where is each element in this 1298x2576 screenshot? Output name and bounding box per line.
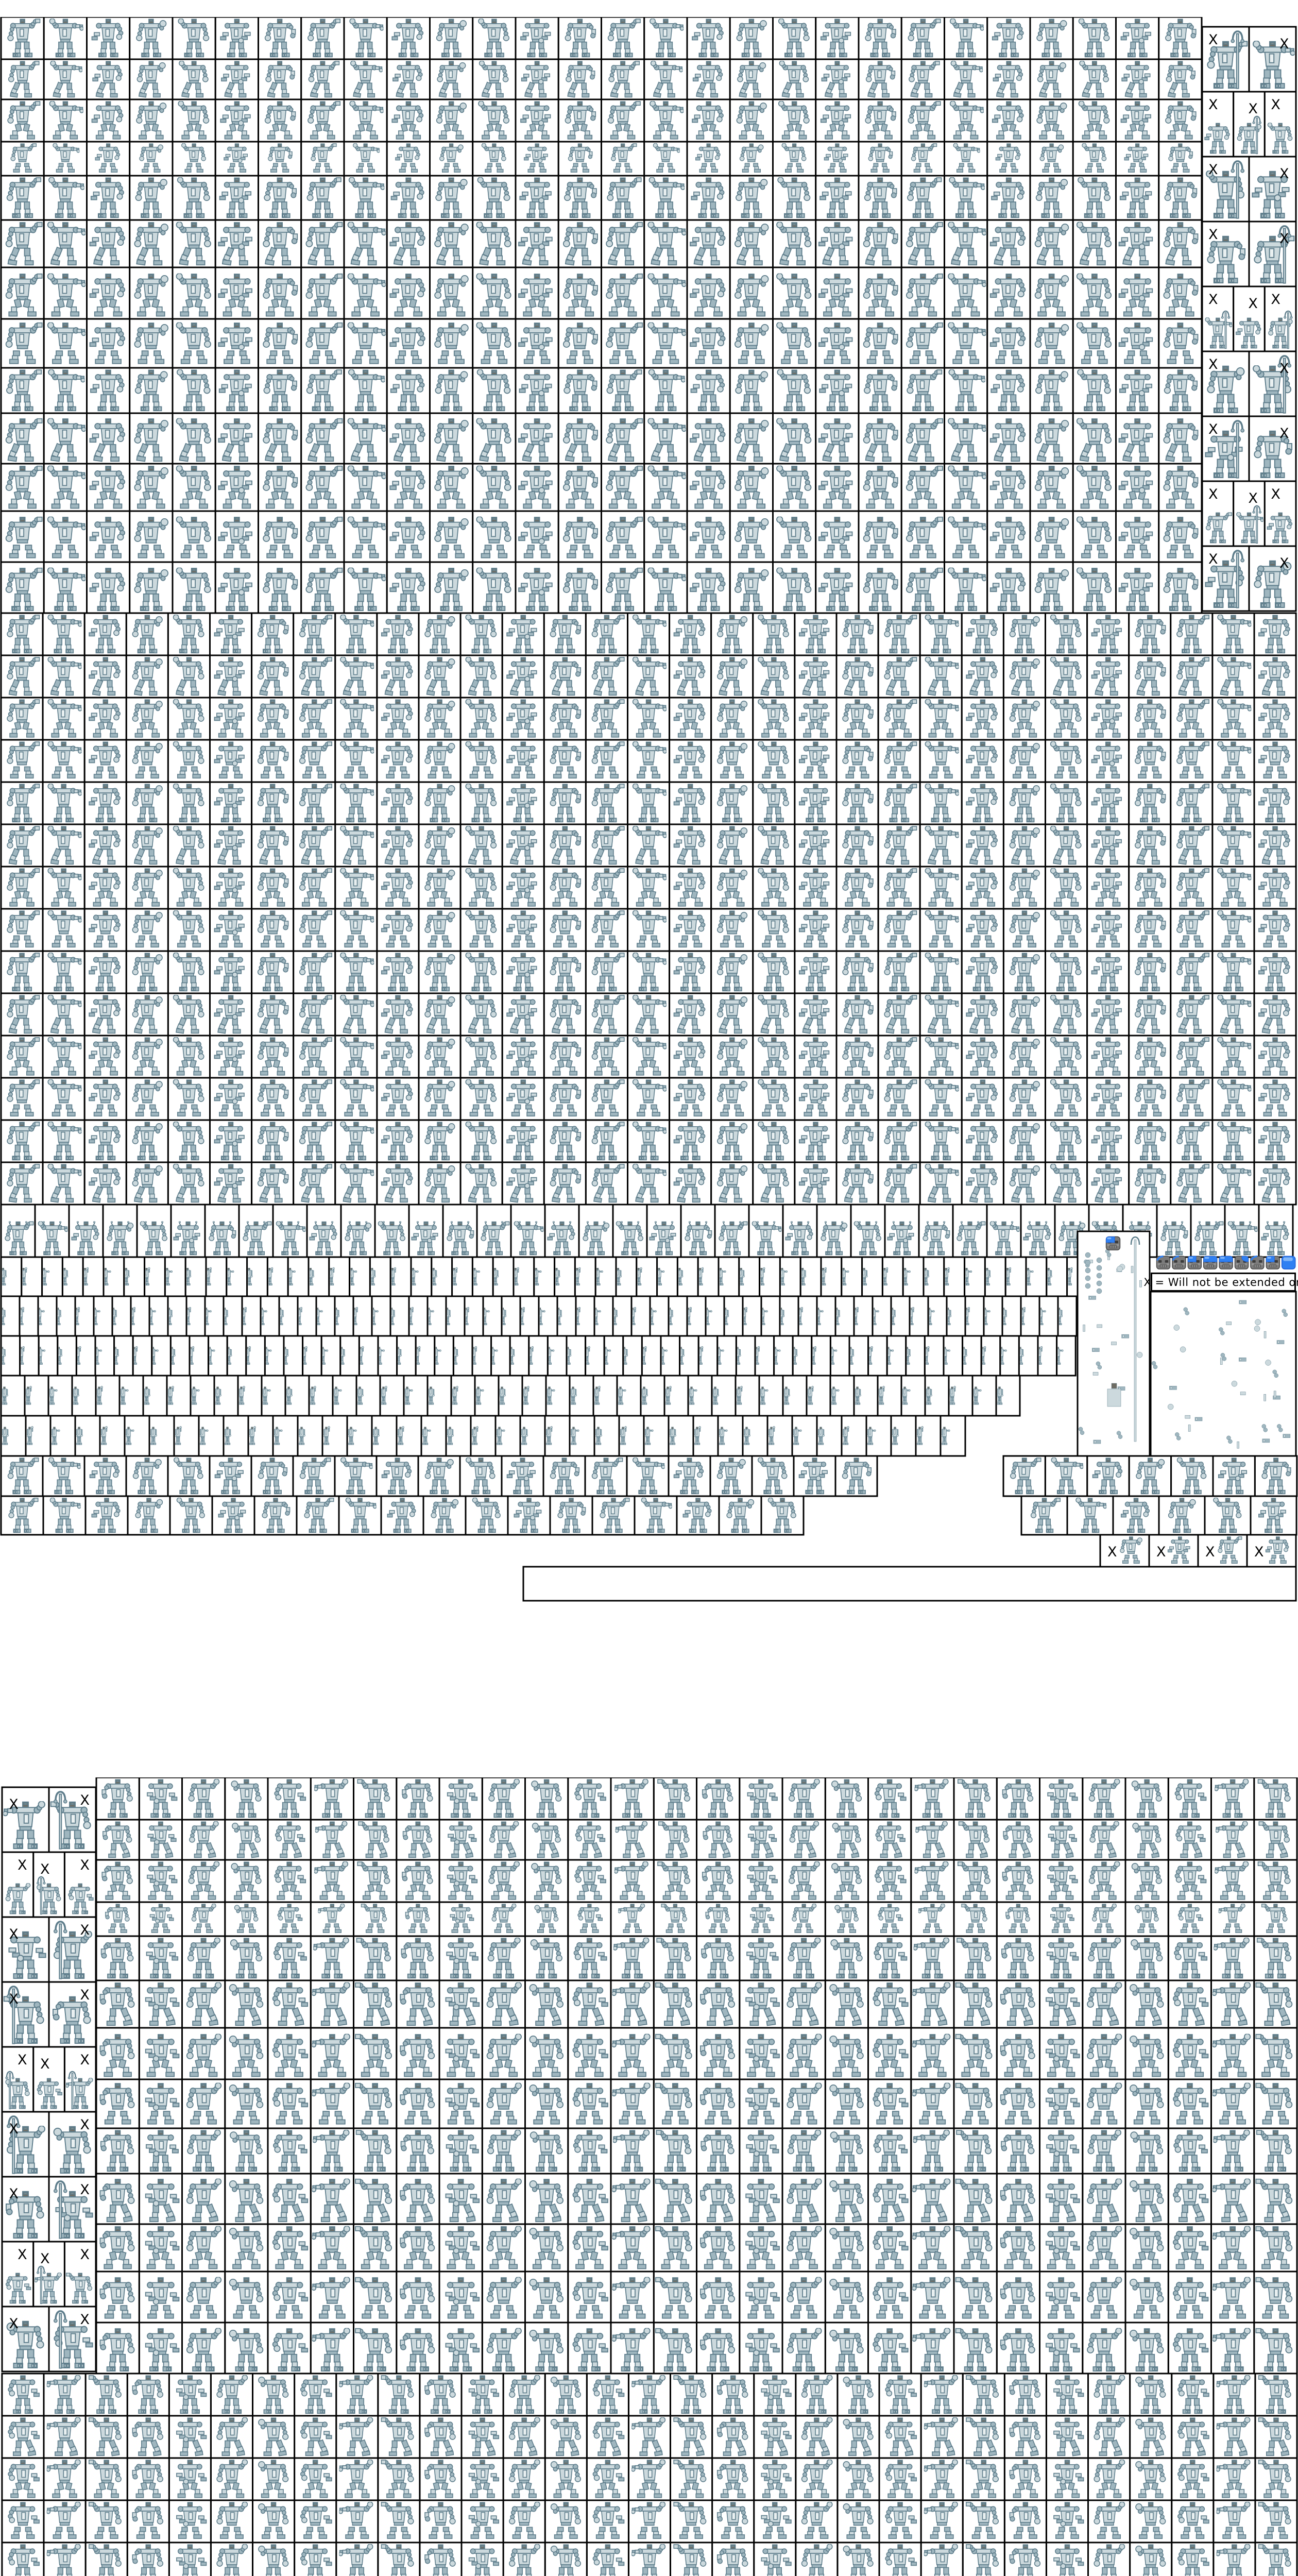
sprite-cell [1087, 1036, 1129, 1078]
sprite-cell [420, 2458, 462, 2500]
sprite-cell [1211, 2272, 1254, 2323]
sprite-cell [1255, 2416, 1297, 2458]
sprite-cell [558, 562, 601, 613]
sprite-cell [335, 1162, 377, 1205]
sprite-cell [1035, 1336, 1056, 1376]
sprite-cell [1171, 1036, 1212, 1078]
sprite-cell [225, 1820, 268, 1860]
sprite-cell [273, 1205, 307, 1257]
sprite-cell [1125, 1777, 1168, 1820]
sprite-cell [294, 1162, 335, 1205]
sprite-cell-x: X [1234, 481, 1265, 546]
sprite-cell [835, 1456, 877, 1496]
sprite-cell [173, 17, 215, 59]
sprite-cell [225, 2224, 268, 2272]
sprite-cell [168, 1120, 210, 1162]
sprite-cell [1254, 698, 1296, 740]
sprite-cell [795, 824, 836, 867]
sprite-cell [126, 824, 168, 867]
sprite-cell [697, 1777, 740, 1820]
sprite-cell [225, 2174, 268, 2224]
sprite-cell [0, 1257, 22, 1296]
sprite-cell [602, 176, 644, 220]
parts-box [1151, 1292, 1296, 1456]
sprite-cell [878, 951, 920, 993]
sprite-cell [795, 993, 836, 1036]
sprite-cell [654, 2323, 696, 2374]
sprite-cell [628, 2543, 670, 2576]
sprite-cell [127, 2543, 169, 2576]
sprite-cell [945, 267, 987, 319]
sprite-cell [859, 176, 901, 220]
sprite-cell [419, 698, 460, 740]
sprite-cell [96, 1376, 119, 1416]
sprite-cell [1212, 1078, 1254, 1120]
sprite-cell [1212, 782, 1254, 824]
sprite-cell [1171, 909, 1212, 951]
sprite-cell [253, 2458, 295, 2500]
sprite-cell [825, 2323, 868, 2374]
sprite-cell [1205, 1496, 1251, 1535]
sprite-cell [602, 562, 644, 613]
sprite-cell [344, 176, 387, 220]
sprite-cell [1159, 99, 1202, 142]
sprite-cell [87, 220, 130, 267]
sprite-cell [987, 142, 1030, 176]
sprite-cell [627, 1456, 669, 1496]
sprite-cell [1003, 1456, 1045, 1496]
sprite-cell [182, 2323, 225, 2374]
sprite-cell [836, 867, 878, 909]
sprite-cell [997, 2323, 1039, 2374]
sprite-cell [404, 1376, 428, 1416]
sprite-cell [43, 655, 84, 698]
sprite-cell [851, 1205, 885, 1257]
sprite-cell [825, 1820, 868, 1860]
sprite-cell [825, 1902, 868, 1936]
sprite-cell [628, 613, 670, 655]
sprite-cell [1054, 1336, 1075, 1376]
sprite-cell [558, 142, 601, 176]
sprite-cell [816, 464, 859, 511]
helmet-icon [1156, 1256, 1170, 1269]
sprite-cell [87, 99, 130, 142]
sprite-cell [1213, 1456, 1255, 1496]
sprite-cell [1, 1416, 26, 1456]
sprite-cell [754, 2458, 796, 2500]
sprite-cell [568, 1936, 611, 1980]
sprite-cell [885, 1205, 919, 1257]
sprite-cell [354, 1860, 397, 1902]
sprite-cell [587, 2374, 628, 2416]
sprite-cell [335, 824, 377, 867]
sprite-cell [740, 2079, 782, 2128]
sprite-cell [997, 2174, 1039, 2224]
sprite-cell [130, 368, 173, 413]
sprite-cell [859, 220, 901, 267]
sprite-cell [516, 267, 558, 319]
sprite-cell [1030, 99, 1073, 142]
sprite-cell [795, 867, 836, 909]
sprite-cell [730, 99, 773, 142]
sprite-cell [1083, 2224, 1125, 2272]
sprite-cell [252, 1078, 294, 1120]
sprite-cell [311, 2079, 353, 2128]
sprite-cell [1040, 2224, 1083, 2272]
sprite-cell [1046, 2500, 1088, 2543]
sprite-cell [602, 142, 644, 176]
sprite-cell [1116, 267, 1159, 319]
sprite-cell [628, 1078, 670, 1120]
sprite-cell [311, 2323, 353, 2374]
sprite-cell [1073, 176, 1116, 220]
sprite-cell [545, 2416, 587, 2458]
sprite-cell [507, 1336, 528, 1376]
sprite-cell [1168, 2174, 1211, 2224]
sprite-cell [354, 2323, 397, 2374]
sprite-cell [314, 1296, 335, 1336]
sprite-cell [628, 867, 670, 909]
sprite-cell [1004, 1257, 1026, 1296]
sprite-cell [1214, 2543, 1255, 2576]
sprite-cell [1003, 867, 1045, 909]
x-mark: X [80, 2052, 90, 2068]
sprite-cell [418, 1456, 460, 1496]
sprite-cell [644, 464, 687, 511]
sprite-cell [711, 655, 753, 698]
sprite-cell [997, 2224, 1039, 2272]
sprite-cell [711, 1162, 753, 1205]
sprite-cell [301, 511, 344, 562]
sprite-cell [611, 1820, 654, 1860]
sprite-cell [1046, 782, 1087, 824]
sprite-cell [1018, 1296, 1039, 1336]
sprite-cell [511, 1205, 545, 1257]
sprite-cell [586, 867, 627, 909]
sprite-cell [1168, 2272, 1211, 2323]
sprite-cell [740, 1860, 782, 1902]
sprite-cell [44, 464, 87, 511]
sprite-cell [1172, 2416, 1214, 2458]
sprite-cell [1030, 413, 1073, 464]
sprite-cell [1254, 613, 1296, 655]
sprite-cell [1, 319, 44, 368]
sprite-cell [997, 1902, 1039, 1936]
sprite-cell [1003, 909, 1045, 951]
x-mark: X [1279, 426, 1289, 442]
sprite-cell [602, 220, 644, 267]
sprite-cell [921, 2500, 963, 2543]
sprite-cell [439, 2028, 482, 2079]
sprite-cell [1, 464, 44, 511]
sprite-cell [963, 2500, 1004, 2543]
sprite-cell [878, 1036, 920, 1078]
sprite-cell [868, 2323, 911, 2374]
x-mark: X [80, 1792, 90, 1808]
sprite-cell [1159, 511, 1202, 562]
sprite-cell [311, 2128, 353, 2174]
sprite-cell [268, 1902, 311, 1936]
sprite-cell [730, 562, 773, 613]
sprite-cell [87, 319, 130, 368]
sprite-cell [838, 2416, 879, 2458]
sprite-cell [1116, 59, 1159, 99]
sprite-cell [782, 2028, 825, 2079]
sprite-cell [847, 1336, 868, 1376]
sprite-cell [165, 1296, 186, 1336]
sprite-cell [628, 909, 670, 951]
sprite-cell [753, 824, 795, 867]
sprite-cell [268, 2079, 311, 2128]
sprite-cell [1073, 562, 1116, 613]
sprite-cell [550, 1496, 592, 1535]
sprite-cell [1171, 613, 1212, 655]
sprite-cell [293, 1456, 335, 1496]
sprite-cell [1125, 2272, 1168, 2323]
sprite-cell [481, 1296, 502, 1336]
sprite-cell [1, 413, 44, 464]
sprite-cell [168, 867, 210, 909]
sprite-cell [419, 993, 460, 1036]
sprite-cell [568, 1777, 611, 1820]
sprite-cell [753, 655, 795, 698]
sprite-cell [86, 2458, 127, 2500]
sprite-cell [807, 1376, 830, 1416]
sprite-cell [868, 1777, 911, 1820]
sprite-cell [473, 99, 516, 142]
sprite-cell [252, 951, 294, 993]
sprite-cell [375, 1205, 409, 1257]
sprite-cell [344, 142, 387, 176]
sprite-cell [1254, 1120, 1296, 1162]
sprite-cell [301, 99, 344, 142]
sprite-cell [130, 413, 173, 464]
sprite-cell-x: X [1202, 286, 1234, 351]
sprite-cell [962, 613, 1003, 655]
sprite-cell [718, 1416, 743, 1456]
sprite-cell [830, 1376, 854, 1416]
sprite-cell [921, 2374, 963, 2416]
sprite-cell [987, 267, 1030, 319]
sprite-cell [173, 176, 215, 220]
sprite-cell [84, 740, 126, 782]
sprite-cell [611, 2079, 654, 2128]
sprite-cell [462, 2374, 503, 2416]
sprite-cell [1129, 824, 1171, 867]
sprite-cell [389, 1257, 411, 1296]
sprite-cell [568, 2128, 611, 2174]
sprite-cell [354, 1902, 397, 1936]
sprite-cell [1171, 740, 1212, 782]
sprite-cell [182, 2224, 225, 2272]
sprite-cell [139, 2079, 182, 2128]
sprite-cell [712, 2374, 754, 2416]
parts-box [1078, 1231, 1150, 1456]
sprite-cell [387, 413, 430, 464]
sprite-cell [125, 1416, 149, 1456]
sprite-cell [987, 17, 1030, 59]
sprite-cell [43, 1036, 84, 1078]
sprite-cell [1172, 2543, 1214, 2576]
sprite-cell [502, 782, 544, 824]
sprite-cell [825, 2079, 868, 2128]
sprite-cell [443, 1205, 477, 1257]
sprite-cell-x: X [1100, 1535, 1149, 1567]
sprite-cell [397, 2174, 439, 2224]
sprite-cell [670, 613, 711, 655]
sprite-cell [987, 562, 1030, 613]
sprite-cell [697, 2272, 740, 2323]
sprite-cell [911, 2323, 954, 2374]
sprite-cell [1116, 413, 1159, 464]
sprite-cell [878, 782, 920, 824]
sprite-cell [419, 909, 460, 951]
sprite-cell [268, 2128, 311, 2174]
sprite-cell [1168, 2224, 1211, 2272]
sprite-cell [878, 1376, 901, 1416]
sprite-cell [1159, 464, 1202, 511]
sprite-cell [1211, 1902, 1254, 1936]
sprite-cell [1130, 2374, 1172, 2416]
sprite-cell [1212, 613, 1254, 655]
sprite-cell [617, 1376, 641, 1416]
sprite-cell [167, 1376, 191, 1416]
sprite-cell [1, 562, 44, 613]
sprite-cell [960, 1336, 981, 1376]
sprite-cell [295, 2500, 336, 2543]
x-mark: X [9, 2186, 19, 2202]
sprite-cell [740, 1820, 782, 1860]
sprite-cell [962, 951, 1003, 993]
sprite-cell [687, 319, 730, 368]
sprite-cell [1030, 319, 1073, 368]
sprite-cell [301, 464, 344, 511]
sprite-cell [451, 1376, 475, 1416]
sprite-cell [997, 1820, 1039, 1860]
sprite-cell [301, 413, 344, 464]
sprite-cell-x: X [64, 2242, 96, 2307]
sprite-cell [670, 782, 711, 824]
sprite-cell [18, 1336, 39, 1376]
sprite-cell [753, 993, 795, 1036]
sprite-cell [866, 1416, 891, 1456]
sprite-cell [259, 59, 301, 99]
sprite-cell [1172, 2500, 1214, 2543]
sprite-cell [473, 176, 516, 220]
sprite-cell [825, 1777, 868, 1820]
sprite-cell [644, 368, 687, 413]
sprite-cell [920, 1036, 962, 1078]
sprite-cell [143, 1257, 165, 1296]
sprite-cell [730, 413, 773, 464]
sprite-cell [127, 2458, 169, 2500]
sprite-cell [1159, 267, 1202, 319]
sprite-cell [516, 59, 558, 99]
sprite-cell [901, 176, 944, 220]
sprite-cell [544, 824, 586, 867]
sprite-cell [796, 2374, 838, 2416]
sprite-cell [173, 319, 215, 368]
sprite-cell [1, 267, 44, 319]
sprite-cell [1129, 613, 1171, 655]
sprite-cell [127, 2500, 169, 2543]
sprite-cell [439, 2128, 482, 2174]
sprite-cell [130, 176, 173, 220]
sprite-cell [516, 220, 558, 267]
sprite-cell [583, 1336, 604, 1376]
sprite-cell [84, 1078, 126, 1120]
sprite-cell [602, 99, 644, 142]
sprite-cell [921, 2458, 963, 2500]
sprite-cell [44, 142, 87, 176]
sprite-cell [670, 698, 711, 740]
sprite-cell-x: X [1202, 481, 1234, 546]
sprite-cell [311, 2272, 353, 2323]
sprite-cell [945, 99, 987, 142]
sprite-cell [979, 1336, 1000, 1376]
sprite-cell [86, 1496, 128, 1535]
sprite-cell [1087, 993, 1129, 1036]
sprite-cell [252, 824, 294, 867]
sprite-cell [1254, 782, 1296, 824]
sprite-cell [301, 267, 344, 319]
sprite-cell [1087, 740, 1129, 782]
sprite-cell [594, 1416, 619, 1456]
sprite-cell [945, 176, 987, 220]
sprite-cell [602, 17, 644, 59]
sprite-cell [602, 1336, 623, 1376]
sprite-cell [168, 1078, 210, 1120]
sprite-cell [1171, 698, 1212, 740]
sprite-cell [1046, 613, 1087, 655]
sprite-cell [224, 1416, 248, 1456]
sprite-cell [644, 220, 687, 267]
sprite-cell [439, 1820, 482, 1860]
sprite-cell [782, 1820, 825, 1860]
sprite-cell [1168, 1777, 1211, 1820]
sprite-cell [268, 1936, 311, 1980]
sprite-cell [43, 613, 84, 655]
sprite-cell [277, 1296, 298, 1336]
sprite-cell [759, 1376, 783, 1416]
sprite-cell [816, 511, 859, 562]
sprite-cell [711, 1120, 753, 1162]
sprite-cell [838, 2500, 879, 2543]
sprite-cell [86, 2374, 127, 2416]
sprite-cell [754, 2416, 796, 2458]
sprite-cell [210, 613, 252, 655]
sprite-cell [86, 2500, 127, 2543]
sprite-cell [1254, 824, 1296, 867]
sprite-cell [868, 1980, 911, 2028]
sprite-cell [1159, 176, 1202, 220]
sprite-cell [963, 2458, 1004, 2500]
sprite-cell [687, 464, 730, 511]
sprite-cell [817, 1205, 851, 1257]
sprite-cell [128, 1296, 149, 1336]
sprite-cell [473, 319, 516, 368]
sprite-cell [1211, 2174, 1254, 2224]
sprite-cell [840, 1257, 862, 1296]
sprite-cell [685, 1296, 706, 1336]
sprite-cell [268, 2224, 311, 2272]
sprite-cell [587, 2458, 628, 2500]
sprite-cell [182, 1777, 225, 1820]
sprite-cell [987, 319, 1030, 368]
sprite-cell [430, 368, 473, 413]
sprite-cell [378, 2458, 420, 2500]
sprite-cell [773, 511, 816, 562]
